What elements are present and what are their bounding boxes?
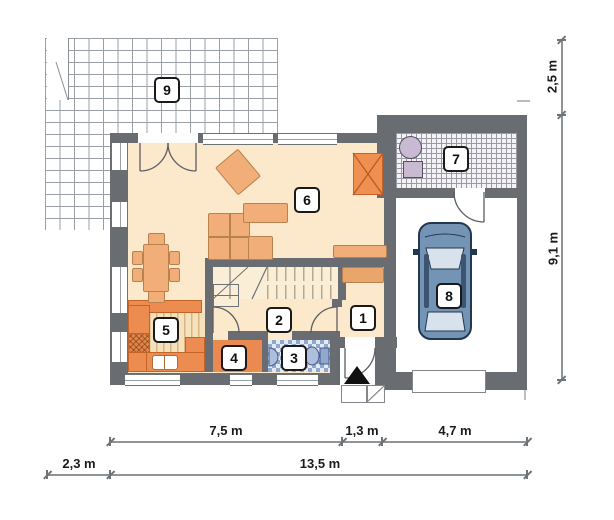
toilet-tank bbox=[320, 348, 329, 364]
extension-dashes bbox=[517, 101, 530, 400]
room-label-1: 1 bbox=[350, 305, 376, 331]
dim-line-top bbox=[110, 441, 527, 443]
notch-diagonal bbox=[56, 62, 68, 100]
room-label-5: 5 bbox=[153, 317, 179, 343]
step-diagonal bbox=[367, 386, 384, 402]
fireplace-flue-mark bbox=[353, 153, 383, 195]
dim-13-5: 13,5 m bbox=[285, 456, 355, 471]
vestibule-door-swing bbox=[311, 307, 337, 333]
pantry-door-swing bbox=[213, 307, 239, 333]
car-mirror-right bbox=[470, 249, 477, 255]
room-label-2: 2 bbox=[266, 307, 292, 333]
washbasin bbox=[269, 348, 278, 366]
room-label-6: 6 bbox=[294, 187, 320, 213]
room-label-8: 8 bbox=[436, 283, 462, 309]
dim-9-1: 9,1 m bbox=[546, 218, 561, 280]
car-rear-window bbox=[425, 312, 465, 331]
dim-2-5: 2,5 m bbox=[545, 46, 560, 108]
dim-1-3: 1,3 m bbox=[332, 423, 392, 438]
dim-line-right bbox=[561, 40, 563, 380]
room-label-3: 3 bbox=[281, 345, 307, 371]
boiler-door-swing bbox=[454, 192, 484, 222]
dim-2-3: 2,3 m bbox=[49, 456, 109, 471]
dim-line-bottom bbox=[47, 474, 527, 476]
car-icon bbox=[413, 223, 477, 339]
toilet bbox=[305, 347, 319, 365]
car-windshield bbox=[426, 248, 464, 269]
room-label-4: 4 bbox=[221, 345, 247, 371]
car-mirror-left bbox=[413, 249, 420, 255]
room-label-9: 9 bbox=[154, 77, 180, 103]
room-label-7: 7 bbox=[443, 146, 469, 172]
dim-4-7: 4,7 m bbox=[425, 423, 485, 438]
car-side-window-left bbox=[424, 254, 429, 308]
dim-7-5: 7,5 m bbox=[196, 423, 256, 438]
terrace-door-swing bbox=[140, 143, 196, 171]
floor-plan: 1 2 3 4 5 6 7 8 9 7,5 m 1,3 m 4,7 m 2,3 … bbox=[0, 0, 614, 520]
stairs-break-line bbox=[252, 267, 267, 299]
